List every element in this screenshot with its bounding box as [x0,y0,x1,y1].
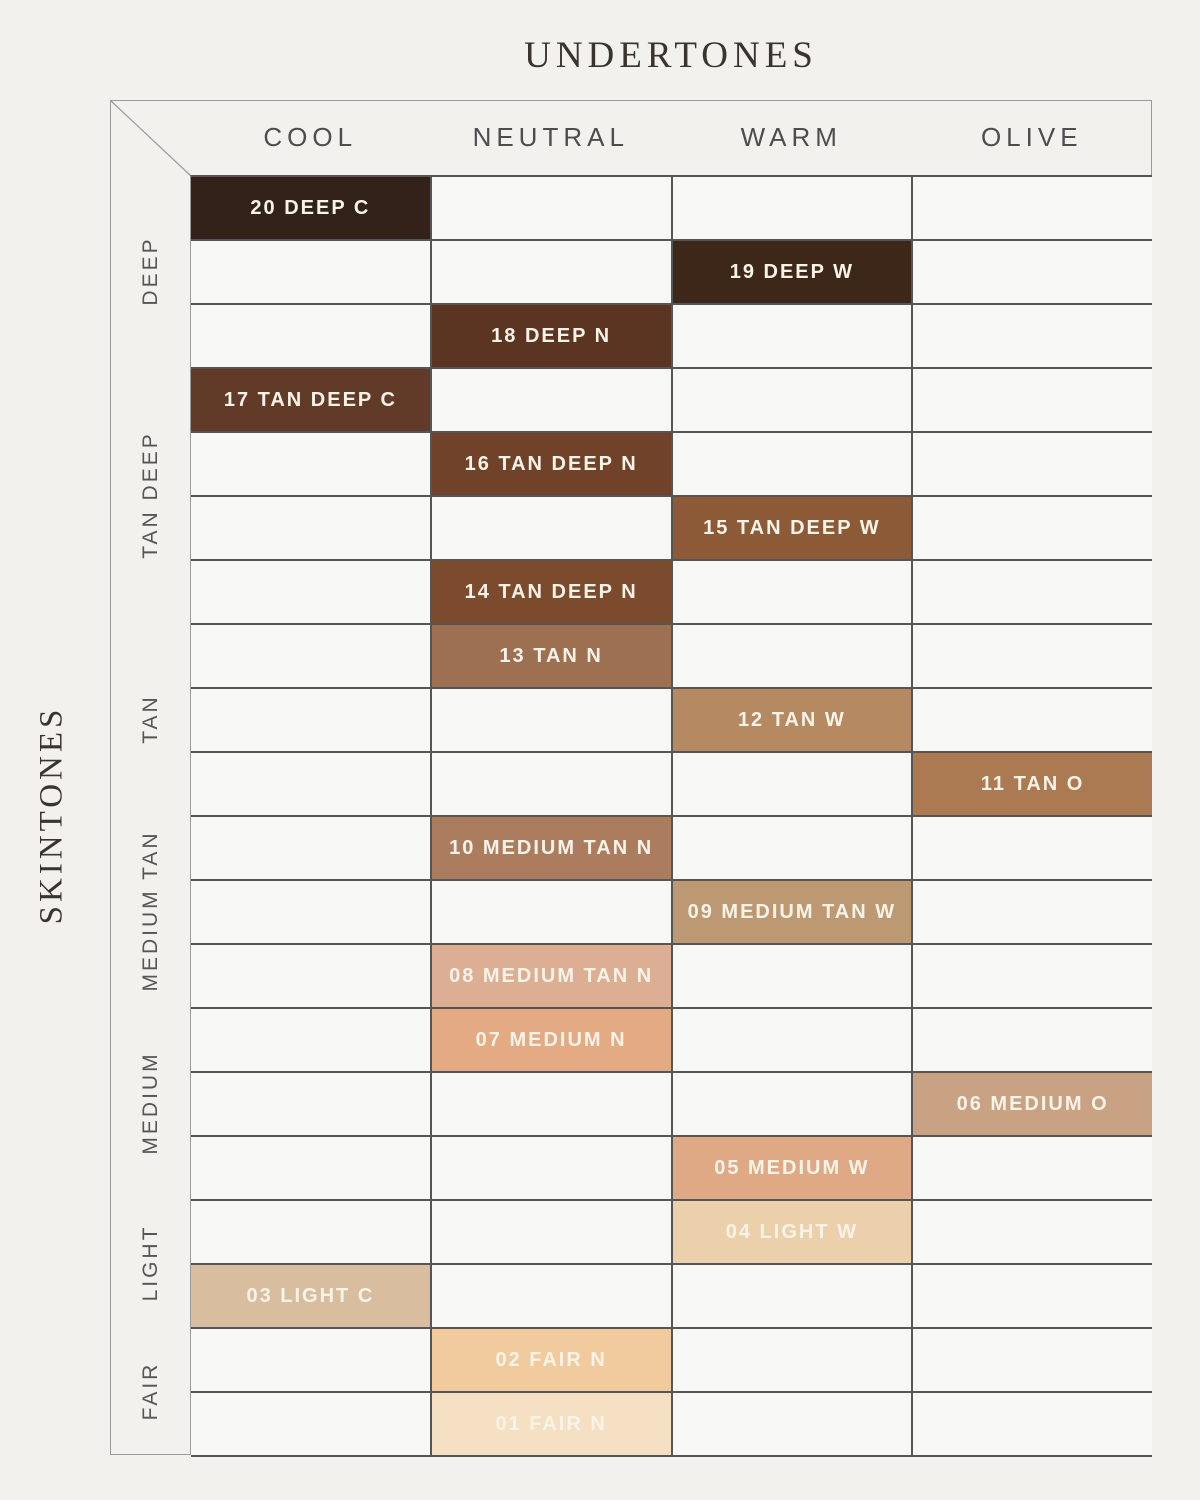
grid-row-15: 06 MEDIUM O [191,1073,1152,1137]
shade-cell-label: 04 LIGHT W [726,1221,858,1244]
empty-cell [191,817,432,879]
empty-cell [432,881,673,943]
grid-row-3: 18 DEEP N [191,305,1152,369]
shade-cell-09-medium-tan-w: 09 MEDIUM TAN W [673,881,914,943]
shade-cell-14-tan-deep-n: 14 TAN DEEP N [432,561,673,623]
shade-cell-12-tan-w: 12 TAN W [673,689,914,751]
row-group-label-tan-deep: TAN DEEP [139,431,163,558]
undertone-column-headers: COOLNEUTRALWARMOLIVE [190,100,1152,175]
empty-cell [913,1329,1152,1391]
empty-cell [191,497,432,559]
empty-cell [432,1265,673,1327]
empty-cell [191,1393,432,1455]
empty-cell [673,433,914,495]
empty-cell [913,497,1152,559]
empty-cell [673,1329,914,1391]
empty-cell [191,1073,432,1135]
shade-cell-label: 12 TAN W [738,709,846,732]
empty-cell [913,305,1152,367]
shade-cell-label: 16 TAN DEEP N [465,453,638,476]
empty-cell [913,1201,1152,1263]
empty-cell [673,817,914,879]
empty-cell [913,369,1152,431]
shade-cell-13-tan-n: 13 TAN N [432,625,673,687]
empty-cell [191,1201,432,1263]
shade-cell-11-tan-o: 11 TAN O [913,753,1152,815]
grid-row-19: 02 FAIR N [191,1329,1152,1393]
shade-cell-10-medium-tan-n: 10 MEDIUM TAN N [432,817,673,879]
empty-cell [191,305,432,367]
empty-cell [191,753,432,815]
shade-cell-label: 05 MEDIUM W [714,1157,869,1180]
shade-cell-label: 15 TAN DEEP W [703,517,881,540]
shade-cell-19-deep-w: 19 DEEP W [673,241,914,303]
empty-cell [191,241,432,303]
empty-cell [432,497,673,559]
empty-cell [913,817,1152,879]
row-group-label-medium-tan: MEDIUM TAN [139,830,163,991]
grid-row-1: 20 DEEP C [191,177,1152,241]
empty-cell [913,1393,1152,1455]
empty-cell [913,1137,1152,1199]
empty-cell [673,1009,914,1071]
shade-chart-page: UNDERTONES SKINTONES COOLNEUTRALWARMOLIV… [0,0,1200,1500]
shade-cell-label: 09 MEDIUM TAN W [688,901,897,924]
empty-cell [432,1201,673,1263]
shade-grid: 20 DEEP C19 DEEP W18 DEEP N17 TAN DEEP C… [190,175,1152,1455]
shade-cell-05-medium-w: 05 MEDIUM W [673,1137,914,1199]
grid-row-4: 17 TAN DEEP C [191,369,1152,433]
empty-cell [673,1393,914,1455]
empty-cell [913,177,1152,239]
empty-cell [191,1009,432,1071]
shade-cell-label: 01 FAIR N [495,1413,606,1436]
empty-cell [191,625,432,687]
skintone-row-group-labels: DEEPTAN DEEPTANMEDIUM TANMEDIUMLIGHTFAIR [0,0,190,1500]
row-group-label-deep: DEEP [139,236,163,305]
empty-cell [913,1009,1152,1071]
empty-cell [913,241,1152,303]
empty-cell [191,945,432,1007]
grid-row-8: 13 TAN N [191,625,1152,689]
shade-cell-label: 08 MEDIUM TAN N [449,965,653,988]
shade-cell-label: 06 MEDIUM O [957,1093,1109,1116]
grid-row-16: 05 MEDIUM W [191,1137,1152,1201]
grid-row-17: 04 LIGHT W [191,1201,1152,1265]
column-header-olive: OLIVE [912,100,1153,175]
shade-cell-label: 17 TAN DEEP C [224,389,397,412]
empty-cell [432,241,673,303]
empty-cell [673,369,914,431]
shade-cell-label: 13 TAN N [499,645,602,668]
shade-cell-20-deep-c: 20 DEEP C [191,177,432,239]
row-group-label-medium: MEDIUM [139,1051,163,1154]
empty-cell [673,1265,914,1327]
empty-cell [432,369,673,431]
shade-cell-01-fair-n: 01 FAIR N [432,1393,673,1455]
row-group-label-light: LIGHT [139,1225,163,1302]
empty-cell [191,561,432,623]
empty-cell [673,945,914,1007]
empty-cell [191,689,432,751]
empty-cell [913,945,1152,1007]
grid-row-9: 12 TAN W [191,689,1152,753]
shade-cell-label: 18 DEEP N [491,325,611,348]
corner-diagonal-line [110,100,191,176]
shade-cell-label: 07 MEDIUM N [476,1029,627,1052]
shade-cell-label: 14 TAN DEEP N [465,581,638,604]
empty-cell [432,1137,673,1199]
row-group-label-tan: TAN [139,694,163,743]
grid-row-10: 11 TAN O [191,753,1152,817]
empty-cell [913,881,1152,943]
shade-cell-16-tan-deep-n: 16 TAN DEEP N [432,433,673,495]
empty-cell [913,625,1152,687]
grid-row-13: 08 MEDIUM TAN N [191,945,1152,1009]
grid-row-18: 03 LIGHT C [191,1265,1152,1329]
empty-cell [673,625,914,687]
shade-cell-label: 03 LIGHT C [246,1285,374,1308]
grid-row-7: 14 TAN DEEP N [191,561,1152,625]
column-header-warm: WARM [671,100,912,175]
empty-cell [673,305,914,367]
shade-cell-04-light-w: 04 LIGHT W [673,1201,914,1263]
shade-cell-02-fair-n: 02 FAIR N [432,1329,673,1391]
grid-row-14: 07 MEDIUM N [191,1009,1152,1073]
column-header-neutral: NEUTRAL [431,100,672,175]
empty-cell [191,1137,432,1199]
grid-row-11: 10 MEDIUM TAN N [191,817,1152,881]
shade-cell-08-medium-tan-n: 08 MEDIUM TAN N [432,945,673,1007]
row-group-label-fair: FAIR [139,1362,163,1421]
shade-cell-18-deep-n: 18 DEEP N [432,305,673,367]
empty-cell [673,177,914,239]
shade-cell-15-tan-deep-w: 15 TAN DEEP W [673,497,914,559]
empty-cell [191,433,432,495]
shade-cell-06-medium-o: 06 MEDIUM O [913,1073,1152,1135]
skintones-axis-title: SKINTONES [34,706,71,925]
shade-cell-label: 20 DEEP C [250,197,370,220]
shade-cell-label: 19 DEEP W [730,261,854,284]
empty-cell [432,753,673,815]
shade-cell-03-light-c: 03 LIGHT C [191,1265,432,1327]
empty-cell [913,1265,1152,1327]
empty-cell [673,1073,914,1135]
grid-row-2: 19 DEEP W [191,241,1152,305]
shade-cell-label: 10 MEDIUM TAN N [449,837,653,860]
empty-cell [432,177,673,239]
shade-cell-07-medium-n: 07 MEDIUM N [432,1009,673,1071]
grid-row-20: 01 FAIR N [191,1393,1152,1457]
undertones-axis-title: UNDERTONES [524,34,818,77]
grid-row-5: 16 TAN DEEP N [191,433,1152,497]
grid-row-12: 09 MEDIUM TAN W [191,881,1152,945]
shade-cell-17-tan-deep-c: 17 TAN DEEP C [191,369,432,431]
empty-cell [191,1329,432,1391]
empty-cell [673,561,914,623]
empty-cell [913,433,1152,495]
empty-cell [673,753,914,815]
empty-cell [913,561,1152,623]
empty-cell [913,689,1152,751]
grid-row-6: 15 TAN DEEP W [191,497,1152,561]
column-header-cool: COOL [190,100,431,175]
empty-cell [191,881,432,943]
shade-cell-label: 02 FAIR N [495,1349,606,1372]
shade-cell-label: 11 TAN O [981,773,1084,796]
empty-cell [432,689,673,751]
empty-cell [432,1073,673,1135]
